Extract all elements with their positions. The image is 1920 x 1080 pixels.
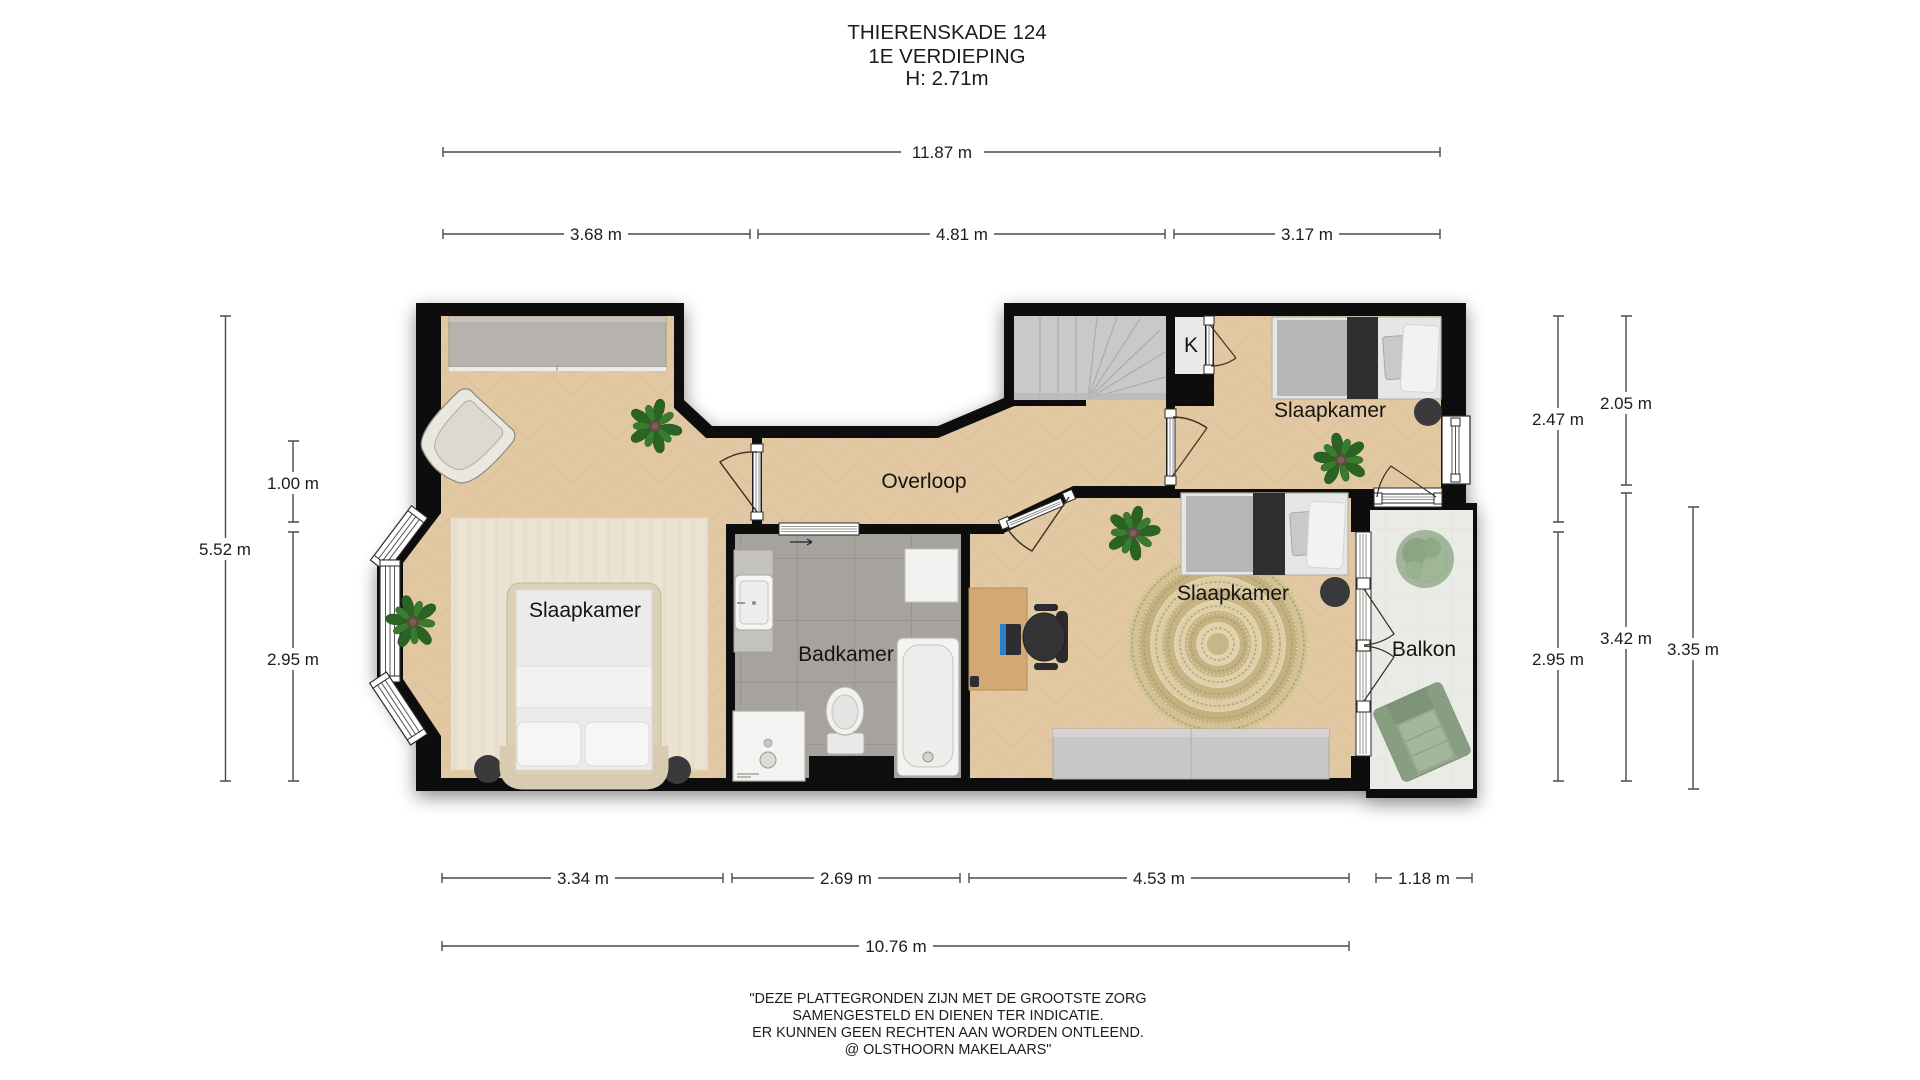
svg-text:4.81 m: 4.81 m	[936, 225, 988, 244]
svg-text:1.00 m: 1.00 m	[267, 474, 319, 493]
svg-text:Overloop: Overloop	[881, 470, 966, 493]
svg-text:1E VERDIEPING: 1E VERDIEPING	[868, 45, 1025, 68]
svg-text:11.87 m: 11.87 m	[912, 143, 972, 162]
svg-text:10.76 m: 10.76 m	[865, 937, 926, 956]
svg-text:Slaapkamer: Slaapkamer	[529, 599, 641, 622]
svg-text:3.35 m: 3.35 m	[1667, 640, 1719, 659]
svg-text:3.34 m: 3.34 m	[557, 869, 609, 888]
svg-text:3.68 m: 3.68 m	[570, 225, 622, 244]
svg-text:2.05 m: 2.05 m	[1600, 394, 1652, 413]
svg-text:SAMENGESTELD EN DIENEN TER IND: SAMENGESTELD EN DIENEN TER INDICATIE.	[792, 1008, 1103, 1024]
svg-text:ER KUNNEN GEEN RECHTEN AAN WOR: ER KUNNEN GEEN RECHTEN AAN WORDEN ONTLEE…	[752, 1025, 1144, 1041]
svg-text:3.17 m: 3.17 m	[1281, 225, 1333, 244]
svg-text:2.47 m: 2.47 m	[1532, 410, 1584, 429]
svg-text:Slaapkamer: Slaapkamer	[1274, 399, 1386, 422]
svg-text:"DEZE PLATTEGRONDEN ZIJN MET D: "DEZE PLATTEGRONDEN ZIJN MET DE GROOTSTE…	[749, 991, 1146, 1007]
svg-text:2.69 m: 2.69 m	[820, 869, 872, 888]
svg-text:Slaapkamer: Slaapkamer	[1177, 582, 1289, 605]
svg-text:Balkon: Balkon	[1392, 638, 1456, 661]
svg-text:@ OLSTHOORN MAKELAARS": @ OLSTHOORN MAKELAARS"	[845, 1042, 1052, 1058]
svg-text:K: K	[1184, 334, 1198, 357]
svg-text:Badkamer: Badkamer	[798, 643, 894, 666]
svg-text:1.18 m: 1.18 m	[1398, 869, 1450, 888]
svg-text:H: 2.71m: H: 2.71m	[905, 67, 988, 90]
svg-text:THIERENSKADE 124: THIERENSKADE 124	[847, 21, 1046, 44]
svg-text:4.53 m: 4.53 m	[1133, 869, 1185, 888]
svg-text:2.95 m: 2.95 m	[1532, 650, 1584, 669]
svg-text:2.95 m: 2.95 m	[267, 650, 319, 669]
svg-text:5.52 m: 5.52 m	[199, 540, 251, 559]
svg-text:3.42 m: 3.42 m	[1600, 629, 1652, 648]
